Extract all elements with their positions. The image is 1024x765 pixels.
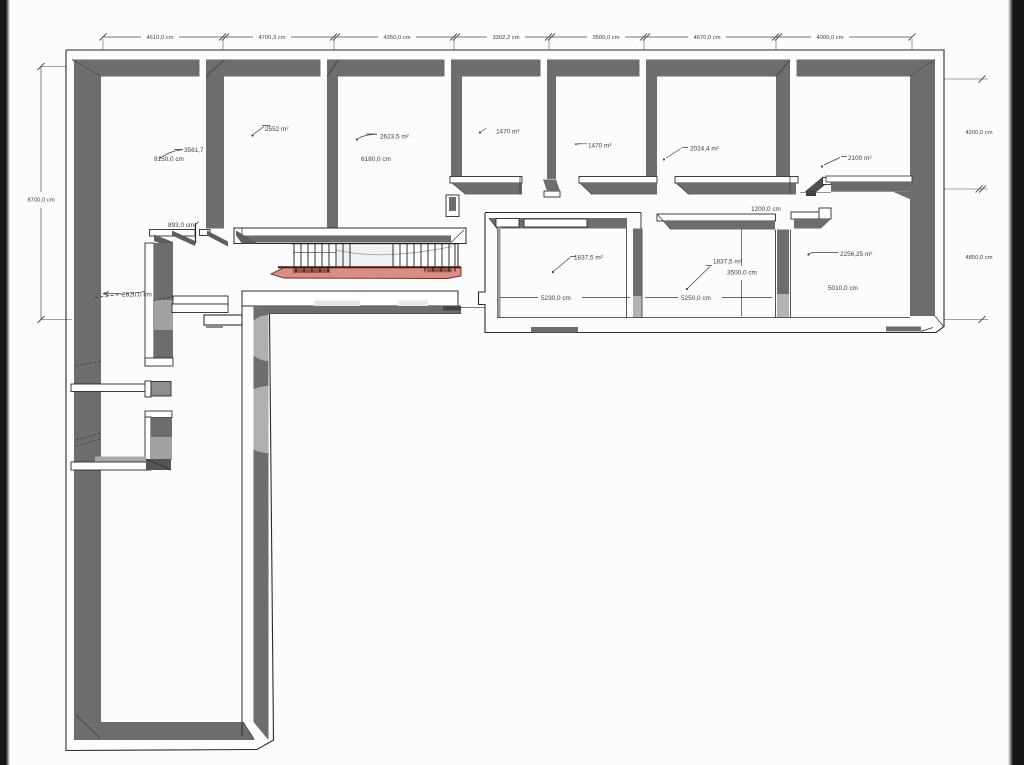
svg-text:2623,5 m²: 2623,5 m² [380,134,409,141]
svg-text:1837,5 m²: 1837,5 m² [713,259,742,266]
svg-text:5010,0 cm: 5010,0 cm [828,285,858,292]
svg-text:4350,0 cm: 4350,0 cm [383,35,410,41]
svg-text:1200,0 cm: 1200,0 cm [751,206,781,213]
svg-text:4700,3 cm: 4700,3 cm [258,35,285,41]
svg-text:1470 m²: 1470 m² [496,129,519,136]
svg-text:4000,0 cm: 4000,0 cm [816,35,843,41]
svg-text:893,0 cm: 893,0 cm [168,222,194,229]
svg-text:4670,0 cm: 4670,0 cm [693,35,720,41]
svg-text:2256,25 m²: 2256,25 m² [840,251,872,258]
svg-text:2620,0 cm: 2620,0 cm [122,292,152,299]
svg-text:3500,0 cm: 3500,0 cm [727,270,757,277]
svg-text:3302,2 cm: 3302,2 cm [492,35,519,41]
svg-text:1470 m²: 1470 m² [588,143,611,150]
svg-text:2024,4 m²: 2024,4 m² [690,146,719,153]
svg-text:1837,5 m²: 1837,5 m² [574,255,603,262]
svg-text:4850,0 cm: 4850,0 cm [965,255,992,261]
svg-text:3561,7: 3561,7 [184,147,204,154]
svg-text:3500,0 cm: 3500,0 cm [592,35,619,41]
svg-text:8150,0 cm: 8150,0 cm [154,156,184,163]
svg-text:2552 m²: 2552 m² [265,126,288,133]
svg-text:4200,0 cm: 4200,0 cm [965,130,992,136]
svg-text:5250,0 cm: 5250,0 cm [681,295,711,302]
svg-text:2100 m²: 2100 m² [848,155,871,162]
svg-text:4610,0 cm: 4610,0 cm [146,35,173,41]
svg-text:8700,0 cm: 8700,0 cm [27,198,54,204]
svg-text:6180,0 cm: 6180,0 cm [361,156,391,163]
svg-text:5230,0 cm: 5230,0 cm [541,295,571,302]
